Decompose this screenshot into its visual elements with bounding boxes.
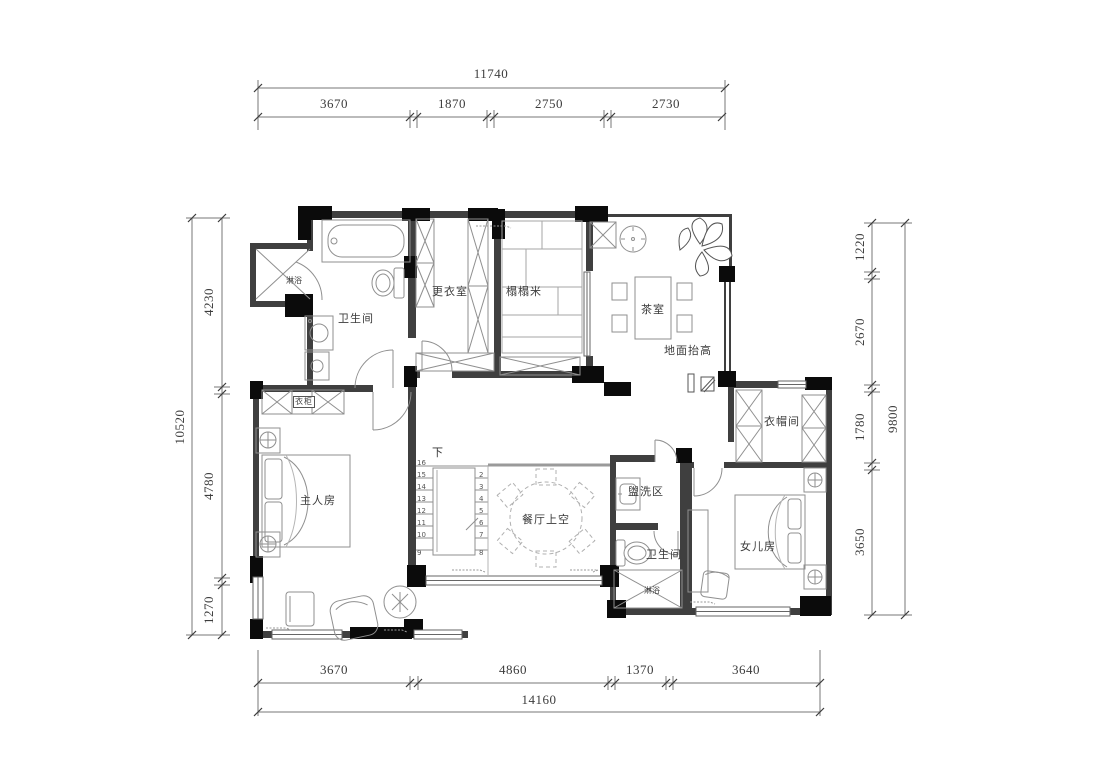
dim-top-seg-3: 2750 — [516, 96, 582, 112]
label-wardrobe: 衣柜 — [293, 396, 315, 408]
walls — [250, 211, 832, 638]
daughter-nightstands — [804, 468, 826, 589]
floor-plan-canvas: 11740 3670 1870 2750 2730 3670 4860 1370… — [0, 0, 1103, 780]
dim-bottom-seg-1: 3670 — [301, 662, 367, 678]
dim-right-seg-2: 2670 — [852, 302, 868, 362]
dim-left-seg-3: 1270 — [201, 580, 217, 640]
dim-left-total: 10520 — [172, 397, 188, 457]
room-label-dressing: 更衣室 — [432, 283, 468, 299]
room-label-master-bedroom: 主人房 — [300, 492, 336, 508]
toilet-1 — [372, 268, 404, 298]
daughter-bed — [735, 495, 805, 569]
stair-num: 2 — [479, 471, 483, 479]
round-stool — [620, 226, 646, 252]
stair-num: 5 — [479, 507, 483, 515]
dim-bottom-total: 14160 — [506, 692, 572, 708]
dim-top-seg-1: 3670 — [301, 96, 367, 112]
dim-left-seg-1: 4230 — [201, 272, 217, 332]
staircase — [416, 465, 610, 576]
dim-bottom-seg-4: 3640 — [713, 662, 779, 678]
dim-right-total: 9800 — [885, 389, 901, 449]
room-label-tatami: 榻榻米 — [506, 283, 542, 299]
stair-down-label: 下 — [432, 444, 443, 460]
floor-plan-drawing — [0, 0, 1103, 780]
room-label-wash-area: 盥洗区 — [628, 483, 664, 499]
dim-top-seg-2: 1870 — [419, 96, 485, 112]
structural-posts — [250, 206, 832, 639]
shaft-symbols — [688, 374, 715, 392]
stair-num: 11 — [417, 519, 426, 527]
room-label-shower-2: 淋浴 — [644, 585, 660, 596]
stair-num: 15 — [417, 471, 426, 479]
room-label-bathroom-2: 卫生间 — [646, 546, 682, 562]
bathtub — [322, 220, 410, 262]
room-label-shower-top: 淋浴 — [286, 275, 302, 286]
dim-bottom-seg-3: 1370 — [607, 662, 673, 678]
dim-bottom-seg-2: 4860 — [480, 662, 546, 678]
stair-num: 14 — [417, 483, 426, 491]
stair-num: 4 — [479, 495, 483, 503]
room-label-daughter-room: 女儿房 — [740, 538, 776, 554]
stair-num: 12 — [417, 507, 426, 515]
stair-num: 9 — [417, 549, 421, 557]
room-label-cloakroom: 衣帽间 — [764, 413, 800, 429]
stair-num: 13 — [417, 495, 426, 503]
dim-left-seg-2: 4780 — [201, 456, 217, 516]
stair-num: 6 — [479, 519, 483, 527]
dim-top-seg-4: 2730 — [633, 96, 699, 112]
room-label-tea-room: 茶室 — [641, 301, 665, 317]
room-label-dining-void: 餐厅上空 — [522, 511, 570, 527]
dim-right-seg-1: 1220 — [852, 217, 868, 277]
toilet-2 — [616, 540, 650, 566]
dim-top-total: 11740 — [458, 66, 524, 82]
stair-num: 3 — [479, 483, 483, 491]
stair-num: 16 — [417, 459, 426, 467]
room-label-bathroom-top: 卫生间 — [338, 310, 374, 326]
stair-num: 7 — [479, 531, 483, 539]
stair-num: 8 — [479, 549, 483, 557]
daughter-desk — [688, 510, 730, 600]
dim-right-seg-3: 1780 — [852, 397, 868, 457]
master-nightstands — [256, 428, 280, 557]
note-floor-raised: 地面抬高 — [664, 342, 712, 358]
dim-right-seg-4: 3650 — [852, 512, 868, 572]
stair-num: 10 — [417, 531, 426, 539]
